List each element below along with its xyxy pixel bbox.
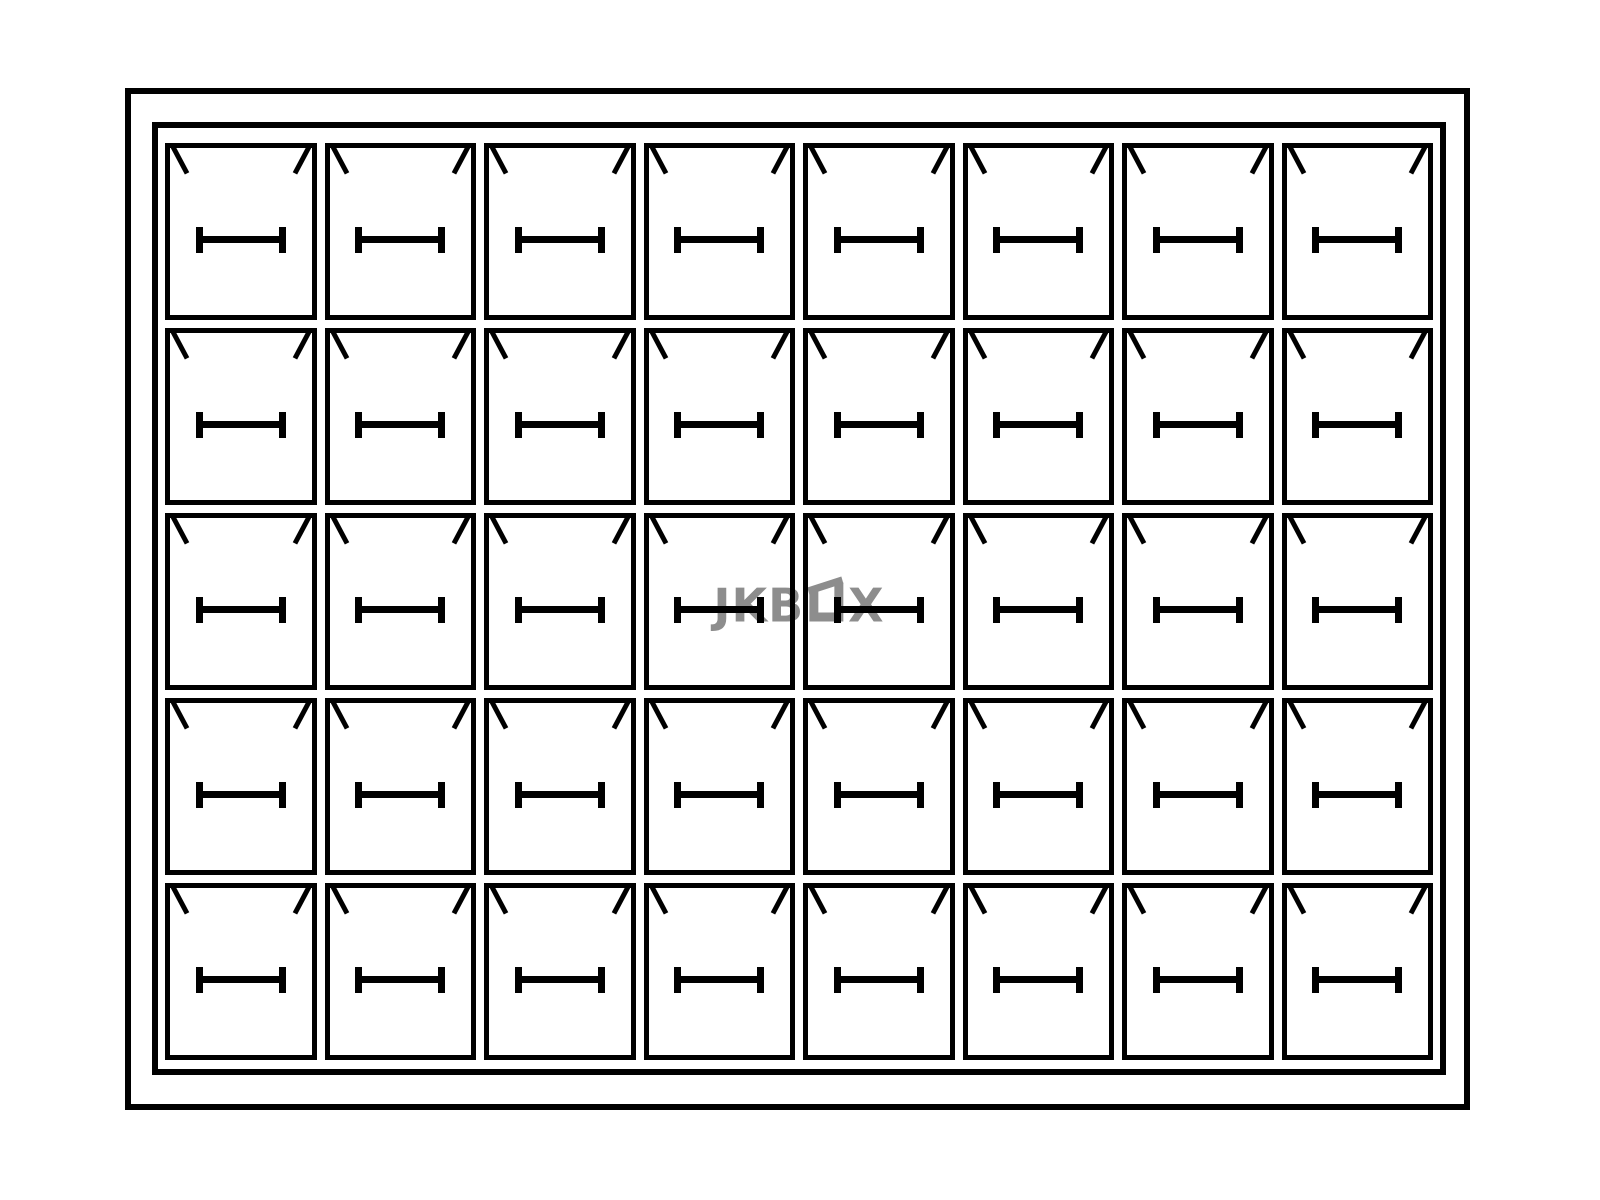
corner-mark-right-icon [1249,515,1268,545]
compartment-cell [963,883,1115,1060]
corner-mark-left-icon [968,700,987,730]
corner-mark-left-icon [649,515,668,545]
corner-mark-left-icon [1127,700,1146,730]
corner-mark-right-icon [771,885,790,915]
corner-mark-right-icon [452,885,471,915]
slot-bar-line [1160,421,1236,428]
slot-bar-line [841,976,917,983]
slot-bar-icon [1153,597,1243,623]
slot-bar-line [362,976,438,983]
slot-bar-line [1319,976,1395,983]
slot-bar-line [681,236,757,243]
slot-bar-end-cap [917,967,924,993]
slot-bar-end-cap [1312,227,1319,253]
slot-bar-line [522,236,598,243]
slot-bar-icon [1312,412,1402,438]
slot-bar-icon [1312,597,1402,623]
corner-mark-right-icon [1249,700,1268,730]
corner-mark-left-icon [330,330,349,360]
corner-mark-left-icon [330,145,349,175]
corner-mark-right-icon [292,700,311,730]
slot-bar-line [1000,236,1076,243]
compartment-cell [803,883,955,1060]
corner-mark-right-icon [930,145,949,175]
diagram-canvas: JKB X [0,0,1600,1200]
slot-bar-end-cap [1236,782,1243,808]
corner-mark-left-icon [170,700,189,730]
slot-bar-line [681,606,757,613]
corner-mark-right-icon [1409,885,1428,915]
slot-bar-line [522,976,598,983]
corner-mark-left-icon [808,515,827,545]
compartment-cell [484,883,636,1060]
slot-bar-end-cap [674,412,681,438]
slot-bar-end-cap [1076,412,1083,438]
corner-mark-right-icon [292,515,311,545]
slot-bar-line [841,791,917,798]
slot-bar-line [522,606,598,613]
slot-bar-end-cap [355,412,362,438]
slot-bar-end-cap [438,227,445,253]
compartment-cell [963,328,1115,505]
slot-bar-end-cap [1236,412,1243,438]
slot-bar-line [1000,606,1076,613]
compartment-cell [165,513,317,690]
compartment-cell [644,143,796,320]
slot-bar-end-cap [1153,227,1160,253]
slot-bar-icon [674,597,764,623]
compartment-cell [165,698,317,875]
corner-mark-left-icon [649,885,668,915]
frame-margin: JKB X [131,94,1464,1104]
slot-bar-icon [196,967,286,993]
slot-bar-end-cap [757,782,764,808]
corner-mark-right-icon [771,515,790,545]
compartment-cell [484,698,636,875]
corner-mark-right-icon [1090,885,1109,915]
slot-bar-line [203,606,279,613]
slot-bar-end-cap [1076,227,1083,253]
compartment-cell [644,883,796,1060]
slot-bar-icon [834,412,924,438]
slot-bar-icon [355,412,445,438]
slot-bar-line [1160,976,1236,983]
slot-bar-end-cap [279,412,286,438]
inner-frame: JKB X [152,122,1446,1075]
slot-bar-line [1000,791,1076,798]
slot-bar-end-cap [1153,597,1160,623]
slot-bar-icon [355,967,445,993]
slot-bar-line [681,421,757,428]
slot-bar-end-cap [355,597,362,623]
slot-bar-end-cap [279,782,286,808]
slot-bar-line [1160,606,1236,613]
slot-bar-end-cap [1153,967,1160,993]
slot-bar-icon [993,782,1083,808]
slot-bar-end-cap [196,597,203,623]
compartment-cell [1282,883,1434,1060]
slot-bar-icon [1312,227,1402,253]
corner-mark-left-icon [1127,885,1146,915]
slot-bar-end-cap [279,967,286,993]
slot-bar-line [841,606,917,613]
corner-mark-left-icon [649,700,668,730]
corner-mark-right-icon [611,885,630,915]
slot-bar-end-cap [196,967,203,993]
slot-bar-line [522,421,598,428]
slot-bar-end-cap [515,227,522,253]
slot-bar-line [1000,976,1076,983]
corner-mark-right-icon [930,330,949,360]
compartment-cell [484,513,636,690]
slot-bar-end-cap [993,967,1000,993]
compartment-cell [165,143,317,320]
slot-bar-end-cap [598,412,605,438]
slot-bar-end-cap [674,782,681,808]
slot-bar-line [841,236,917,243]
slot-bar-line [362,236,438,243]
corner-mark-right-icon [1409,145,1428,175]
compartment-cell [165,328,317,505]
corner-mark-left-icon [489,885,508,915]
slot-bar-end-cap [355,782,362,808]
slot-bar-icon [1153,782,1243,808]
slot-bar-end-cap [993,597,1000,623]
slot-bar-icon [196,597,286,623]
corner-mark-left-icon [489,330,508,360]
compartment-cell [1122,143,1274,320]
corner-mark-left-icon [170,145,189,175]
slot-bar-icon [993,412,1083,438]
slot-bar-line [362,791,438,798]
slot-bar-end-cap [515,967,522,993]
compartment-cell [1282,698,1434,875]
slot-bar-end-cap [1236,597,1243,623]
compartment-cell [963,698,1115,875]
corner-mark-right-icon [1409,515,1428,545]
corner-mark-right-icon [1249,330,1268,360]
compartment-cell [644,513,796,690]
compartment-cell [325,328,477,505]
slot-bar-end-cap [438,412,445,438]
slot-bar-line [1160,236,1236,243]
corner-mark-left-icon [1287,515,1306,545]
slot-bar-end-cap [1395,227,1402,253]
corner-mark-right-icon [771,330,790,360]
slot-bar-end-cap [1236,967,1243,993]
slot-bar-icon [674,967,764,993]
slot-bar-icon [1312,967,1402,993]
slot-bar-icon [834,597,924,623]
corner-mark-left-icon [968,330,987,360]
slot-bar-end-cap [1312,967,1319,993]
compartment-cell [803,698,955,875]
slot-bar-line [203,976,279,983]
slot-bar-end-cap [598,782,605,808]
compartment-cell [1282,328,1434,505]
slot-bar-end-cap [917,227,924,253]
slot-bar-end-cap [917,597,924,623]
slot-bar-icon [993,967,1083,993]
corner-mark-left-icon [1127,330,1146,360]
slot-bar-icon [993,227,1083,253]
slot-bar-line [1319,236,1395,243]
slot-bar-icon [515,597,605,623]
slot-bar-end-cap [993,227,1000,253]
slot-bar-end-cap [834,597,841,623]
slot-bar-icon [355,782,445,808]
slot-bar-line [1160,791,1236,798]
slot-bar-line [203,236,279,243]
slot-bar-end-cap [438,967,445,993]
slot-bar-icon [1153,412,1243,438]
compartment-cell [325,698,477,875]
slot-bar-end-cap [834,412,841,438]
corner-mark-right-icon [292,145,311,175]
slot-bar-icon [993,597,1083,623]
corner-mark-right-icon [1249,885,1268,915]
slot-bar-icon [515,227,605,253]
slot-bar-end-cap [515,412,522,438]
corner-mark-left-icon [330,885,349,915]
corner-mark-right-icon [452,515,471,545]
compartment-cell [803,513,955,690]
slot-bar-end-cap [1395,412,1402,438]
corner-mark-left-icon [1127,145,1146,175]
slot-bar-end-cap [834,227,841,253]
slot-bar-end-cap [598,227,605,253]
compartment-grid [158,128,1440,1069]
slot-bar-end-cap [1312,782,1319,808]
compartment-cell [963,143,1115,320]
slot-bar-end-cap [674,967,681,993]
slot-bar-end-cap [1236,227,1243,253]
corner-mark-left-icon [330,700,349,730]
corner-mark-left-icon [1287,145,1306,175]
slot-bar-end-cap [1153,412,1160,438]
corner-mark-right-icon [1090,515,1109,545]
corner-mark-left-icon [170,885,189,915]
slot-bar-line [522,791,598,798]
slot-bar-end-cap [1312,597,1319,623]
slot-bar-end-cap [993,412,1000,438]
slot-bar-end-cap [279,597,286,623]
corner-mark-left-icon [808,145,827,175]
slot-bar-icon [834,967,924,993]
corner-mark-left-icon [968,145,987,175]
corner-mark-right-icon [452,145,471,175]
slot-bar-end-cap [993,782,1000,808]
slot-bar-end-cap [355,967,362,993]
corner-mark-right-icon [452,700,471,730]
compartment-cell [325,513,477,690]
slot-bar-end-cap [598,597,605,623]
slot-bar-end-cap [1395,597,1402,623]
slot-bar-line [681,791,757,798]
corner-mark-left-icon [1127,515,1146,545]
corner-mark-left-icon [170,330,189,360]
slot-bar-icon [515,412,605,438]
slot-bar-end-cap [834,782,841,808]
slot-bar-icon [196,227,286,253]
compartment-cell [1122,883,1274,1060]
slot-bar-icon [674,227,764,253]
slot-bar-line [1319,421,1395,428]
corner-mark-right-icon [611,515,630,545]
corner-mark-right-icon [771,700,790,730]
corner-mark-right-icon [452,330,471,360]
slot-bar-end-cap [279,227,286,253]
slot-bar-line [203,421,279,428]
corner-mark-left-icon [1287,330,1306,360]
compartment-cell [644,328,796,505]
slot-bar-end-cap [1076,597,1083,623]
slot-bar-icon [674,782,764,808]
slot-bar-icon [355,597,445,623]
slot-bar-end-cap [757,227,764,253]
slot-bar-end-cap [438,782,445,808]
slot-bar-end-cap [515,782,522,808]
slot-bar-end-cap [196,782,203,808]
outer-frame: JKB X [125,88,1470,1110]
corner-mark-right-icon [1090,145,1109,175]
corner-mark-right-icon [1409,700,1428,730]
corner-mark-left-icon [808,330,827,360]
slot-bar-icon [196,782,286,808]
corner-mark-right-icon [611,700,630,730]
compartment-cell [484,143,636,320]
compartment-cell [1122,328,1274,505]
corner-mark-left-icon [1287,700,1306,730]
compartment-cell [803,143,955,320]
slot-bar-line [1319,606,1395,613]
corner-mark-right-icon [930,515,949,545]
slot-bar-icon [196,412,286,438]
slot-bar-icon [674,412,764,438]
compartment-cell [644,698,796,875]
corner-mark-left-icon [489,145,508,175]
corner-mark-left-icon [968,515,987,545]
slot-bar-end-cap [834,967,841,993]
corner-mark-right-icon [611,145,630,175]
compartment-cell [484,328,636,505]
slot-bar-end-cap [757,967,764,993]
corner-mark-left-icon [649,145,668,175]
slot-bar-icon [355,227,445,253]
compartment-cell [1282,143,1434,320]
corner-mark-right-icon [292,330,311,360]
slot-bar-end-cap [515,597,522,623]
corner-mark-right-icon [1249,145,1268,175]
compartment-cell [1282,513,1434,690]
corner-mark-left-icon [170,515,189,545]
slot-bar-end-cap [1076,967,1083,993]
corner-mark-right-icon [611,330,630,360]
slot-bar-line [841,421,917,428]
corner-mark-right-icon [930,885,949,915]
slot-bar-end-cap [757,412,764,438]
slot-bar-line [681,976,757,983]
slot-bar-end-cap [196,412,203,438]
slot-bar-end-cap [355,227,362,253]
slot-bar-end-cap [1395,782,1402,808]
corner-mark-left-icon [808,700,827,730]
compartment-cell [165,883,317,1060]
compartment-cell [803,328,955,505]
slot-bar-end-cap [1076,782,1083,808]
corner-mark-left-icon [968,885,987,915]
slot-bar-end-cap [757,597,764,623]
slot-bar-end-cap [598,967,605,993]
slot-bar-icon [834,227,924,253]
slot-bar-icon [1153,967,1243,993]
slot-bar-line [362,606,438,613]
compartment-cell [325,883,477,1060]
slot-bar-end-cap [674,227,681,253]
slot-bar-line [1319,791,1395,798]
slot-bar-end-cap [438,597,445,623]
corner-mark-right-icon [292,885,311,915]
corner-mark-right-icon [1090,330,1109,360]
compartment-cell [963,513,1115,690]
corner-mark-right-icon [930,700,949,730]
slot-bar-icon [515,967,605,993]
compartment-cell [1122,513,1274,690]
slot-bar-line [1000,421,1076,428]
corner-mark-right-icon [1409,330,1428,360]
slot-bar-end-cap [196,227,203,253]
corner-mark-left-icon [489,515,508,545]
corner-mark-left-icon [808,885,827,915]
slot-bar-end-cap [917,412,924,438]
slot-bar-icon [1312,782,1402,808]
slot-bar-icon [834,782,924,808]
slot-bar-icon [515,782,605,808]
corner-mark-right-icon [1090,700,1109,730]
slot-bar-end-cap [674,597,681,623]
compartment-cell [1122,698,1274,875]
slot-bar-icon [1153,227,1243,253]
slot-bar-end-cap [917,782,924,808]
compartment-cell [325,143,477,320]
corner-mark-left-icon [1287,885,1306,915]
slot-bar-line [203,791,279,798]
slot-bar-end-cap [1395,967,1402,993]
slot-bar-line [362,421,438,428]
corner-mark-left-icon [489,700,508,730]
corner-mark-left-icon [330,515,349,545]
corner-mark-right-icon [771,145,790,175]
slot-bar-end-cap [1153,782,1160,808]
corner-mark-left-icon [649,330,668,360]
slot-bar-end-cap [1312,412,1319,438]
